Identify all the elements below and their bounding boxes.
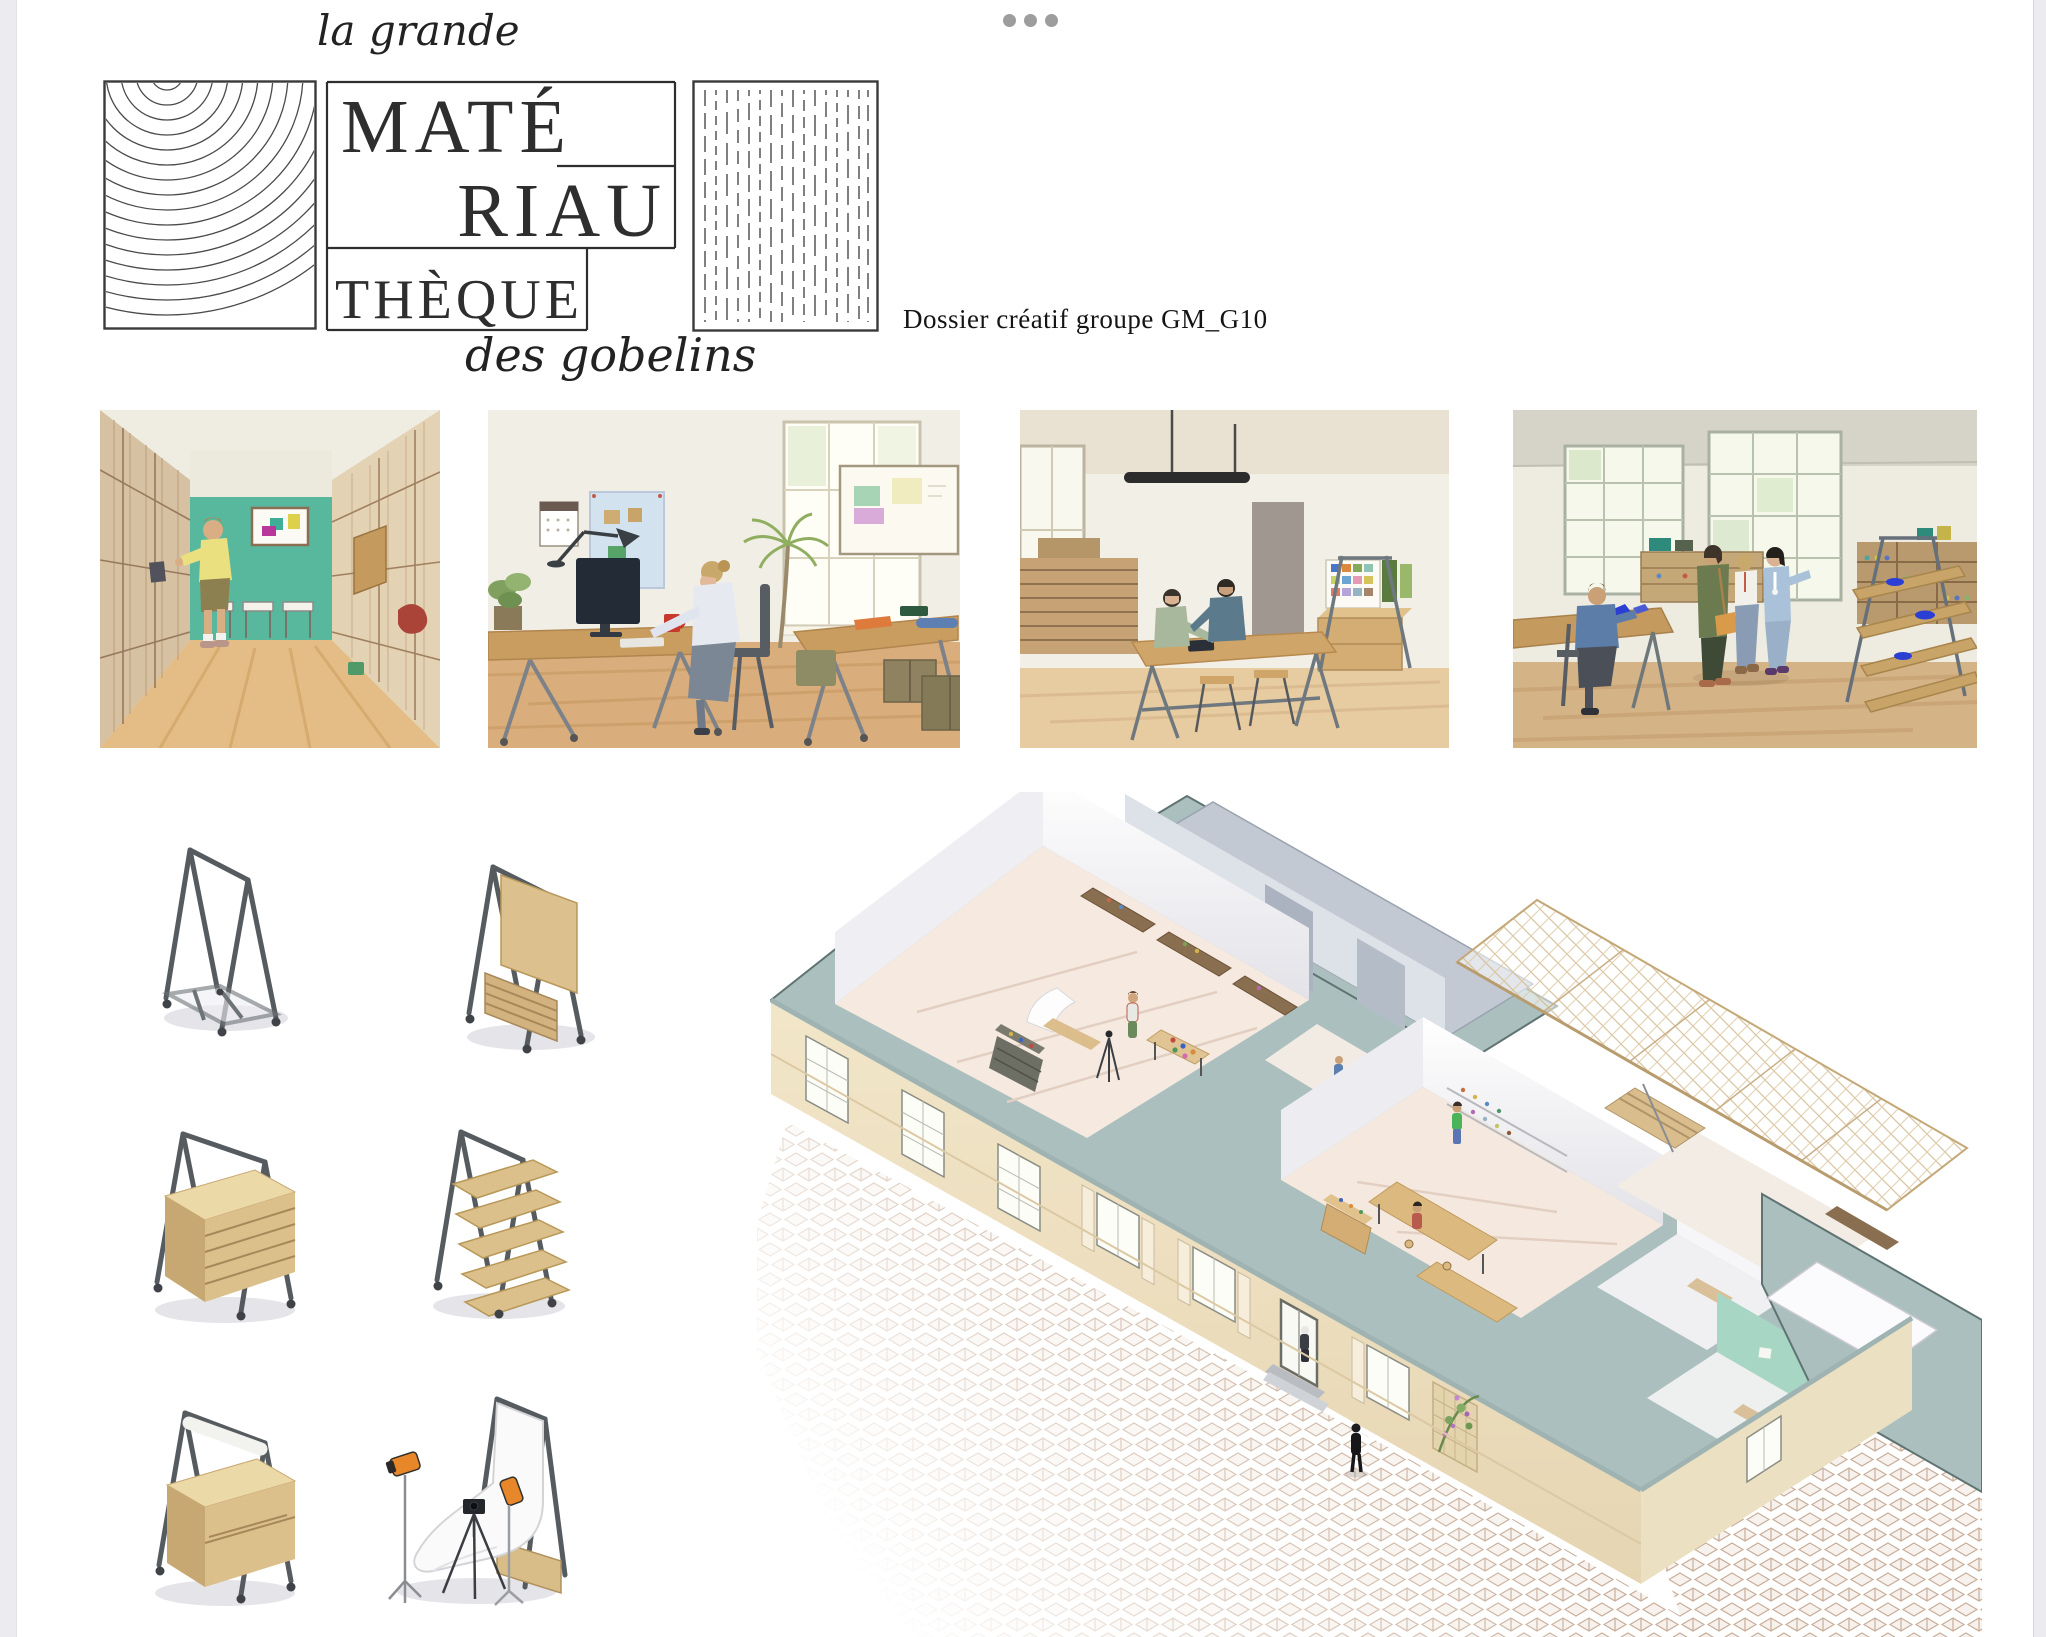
overflow-menu-dot-icon: [1003, 14, 1016, 27]
grey-door: [1252, 502, 1304, 642]
screenshot-stage: la grande MATÉ RIAU THÈQUE: [0, 0, 2046, 1637]
seamless-backdrop: [414, 1403, 543, 1572]
illustration-showroom: [1513, 410, 1977, 748]
overflow-menu[interactable]: [1003, 14, 1058, 27]
green-bag: [348, 662, 364, 675]
wordmark-line-3: THÈQUE: [335, 269, 583, 331]
logo-arcs-icon: [103, 80, 317, 330]
basket: [796, 650, 836, 686]
brand-pretitle: la grande: [317, 6, 520, 55]
touched-sample: [149, 561, 166, 582]
seated-figure: [1412, 1202, 1422, 1230]
render-photo-studio-setup: [347, 1385, 572, 1615]
studio-strobe-left: [385, 1451, 421, 1603]
blue-roll: [916, 618, 958, 628]
logo-dashes-icon: [692, 80, 879, 332]
overflow-menu-dot-icon: [1045, 14, 1058, 27]
render-aframe-shelves: [415, 1112, 580, 1322]
illustration-consultation-room: [1020, 410, 1449, 748]
wordmark-line-1: MATÉ: [341, 85, 572, 169]
axonometric-building-cutaway: [757, 792, 1982, 1637]
moodboard-frame: [840, 466, 958, 554]
render-aframe-drawer-chest: [137, 1112, 312, 1327]
illustration-corridor-gallery: [100, 410, 440, 748]
dossier-caption: Dossier créatif groupe GM_G10: [903, 304, 1268, 335]
illustration-office-workspace: [488, 410, 960, 748]
wall-poster: [252, 508, 308, 545]
wordmark-line-2: RIAU: [457, 169, 667, 253]
green-book: [900, 606, 928, 616]
open-locker: [354, 526, 386, 594]
render-aframe-panel-crate: [449, 845, 609, 1055]
brand-wordmark: MATÉ RIAU THÈQUE: [325, 80, 679, 334]
render-aframe-rack-empty: [152, 822, 300, 1037]
document-page: la grande MATÉ RIAU THÈQUE: [16, 0, 2034, 1637]
calendar: [540, 502, 578, 546]
overflow-menu-dot-icon: [1024, 14, 1037, 27]
render-aframe-cabinet-roll: [137, 1393, 312, 1611]
browsing-figure: [1452, 1102, 1462, 1145]
photographer-figure: [1127, 991, 1138, 1038]
brand-subtitle: des gobelins: [465, 328, 756, 382]
